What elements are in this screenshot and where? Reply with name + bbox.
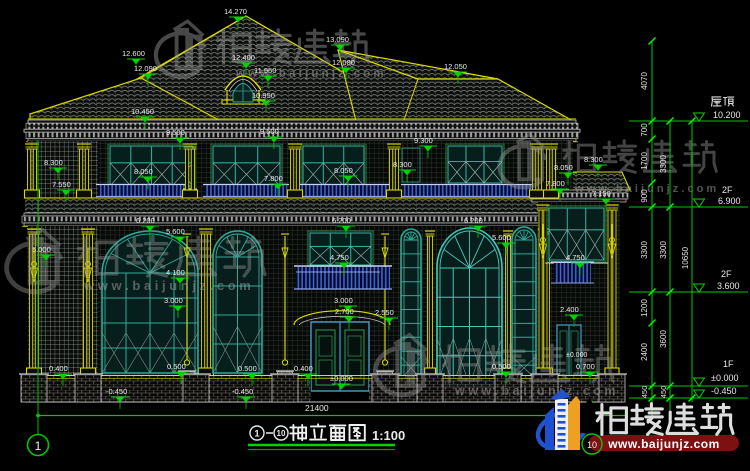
- svg-text:450: 450: [659, 386, 668, 399]
- svg-text:0.400: 0.400: [49, 364, 68, 373]
- svg-text:12.600: 12.600: [122, 49, 145, 58]
- svg-text:8.300: 8.300: [584, 155, 603, 164]
- svg-text:3.000: 3.000: [164, 296, 183, 305]
- svg-text:2F: 2F: [721, 269, 732, 279]
- svg-text:-0.450: -0.450: [106, 387, 127, 396]
- svg-text:13.090: 13.090: [326, 35, 349, 44]
- svg-text:1: 1: [254, 429, 260, 440]
- svg-text:10.200: 10.200: [713, 110, 741, 120]
- svg-text:21400: 21400: [305, 403, 329, 413]
- svg-text:12.050: 12.050: [444, 62, 467, 71]
- svg-text:3300: 3300: [659, 241, 668, 259]
- svg-text:3.600: 3.600: [717, 281, 740, 291]
- svg-text:0.400: 0.400: [294, 364, 313, 373]
- svg-text:3300: 3300: [659, 155, 668, 173]
- svg-text:2400: 2400: [640, 343, 649, 361]
- svg-text:-0.450: -0.450: [232, 387, 253, 396]
- svg-text:±0.000: ±0.000: [566, 352, 587, 359]
- svg-text:w w w . b a i j u n j z . c o: w w w . b a i j u n j z . c o m: [83, 278, 251, 293]
- svg-text:8.050: 8.050: [334, 166, 353, 175]
- svg-text:1700: 1700: [640, 152, 649, 170]
- svg-text:5.600: 5.600: [166, 227, 185, 236]
- svg-text:8.050: 8.050: [554, 163, 573, 172]
- svg-text:10: 10: [587, 440, 597, 450]
- svg-text:700: 700: [640, 123, 649, 137]
- svg-text:11.950: 11.950: [254, 66, 276, 75]
- svg-text:12.080: 12.080: [332, 58, 355, 67]
- svg-text:10.450: 10.450: [131, 107, 154, 116]
- svg-text:8.300: 8.300: [44, 158, 63, 167]
- svg-text:2.700: 2.700: [335, 307, 354, 316]
- svg-text:9.300: 9.300: [414, 136, 433, 145]
- svg-text:1F: 1F: [723, 359, 734, 369]
- svg-text:±0.000: ±0.000: [711, 373, 738, 383]
- svg-text:0.500: 0.500: [167, 362, 186, 371]
- svg-text:6.200: 6.200: [464, 216, 483, 225]
- svg-text:8.050: 8.050: [134, 167, 153, 176]
- svg-text:10: 10: [277, 429, 286, 438]
- svg-text:7.800: 7.800: [264, 174, 283, 183]
- svg-text:9.500: 9.500: [166, 128, 185, 137]
- svg-text:3600: 3600: [659, 330, 668, 348]
- svg-text:7.550: 7.550: [52, 180, 71, 189]
- svg-text:6.900: 6.900: [718, 196, 741, 206]
- svg-text:10.950: 10.950: [252, 91, 275, 100]
- svg-text:0.500: 0.500: [238, 364, 257, 373]
- svg-text:3.000: 3.000: [334, 296, 353, 305]
- svg-text:0.500: 0.500: [492, 362, 511, 371]
- svg-text:1: 1: [35, 439, 42, 453]
- svg-text:12.400: 12.400: [232, 53, 255, 62]
- svg-text:6.200: 6.200: [136, 216, 155, 225]
- svg-text:4.100: 4.100: [166, 268, 185, 277]
- svg-text:900: 900: [640, 189, 649, 203]
- svg-text:450: 450: [640, 386, 649, 399]
- svg-text:6.200: 6.200: [332, 216, 351, 225]
- svg-text:4.750: 4.750: [566, 253, 585, 262]
- svg-text:7.150: 7.150: [592, 189, 611, 198]
- svg-text:10650: 10650: [681, 246, 690, 269]
- svg-text:2.550: 2.550: [375, 308, 394, 317]
- svg-text:3300: 3300: [640, 241, 649, 259]
- svg-text:5.600: 5.600: [492, 233, 511, 242]
- svg-text:5.000: 5.000: [32, 245, 51, 254]
- svg-text:0.700: 0.700: [576, 362, 595, 371]
- svg-text:2F: 2F: [722, 185, 733, 195]
- svg-text:±0.000: ±0.000: [330, 374, 353, 383]
- svg-text:4.750: 4.750: [330, 253, 349, 262]
- svg-text:12.090: 12.090: [134, 64, 157, 73]
- svg-text:www.baijunjz.com: www.baijunjz.com: [607, 437, 720, 451]
- svg-text:2.400: 2.400: [560, 305, 579, 314]
- svg-text:9.500: 9.500: [260, 127, 279, 136]
- svg-text:-0.450: -0.450: [711, 386, 737, 396]
- svg-text:14.270: 14.270: [224, 7, 247, 16]
- svg-text:7.800: 7.800: [546, 179, 565, 188]
- svg-text:4070: 4070: [640, 72, 649, 90]
- svg-text:1200: 1200: [640, 299, 649, 317]
- svg-text:w w w . b a i j u n j z . c o: w w w . b a i j u n j z . c o m: [454, 384, 615, 398]
- svg-text:8.300: 8.300: [393, 160, 412, 169]
- svg-text:1:100: 1:100: [372, 428, 405, 443]
